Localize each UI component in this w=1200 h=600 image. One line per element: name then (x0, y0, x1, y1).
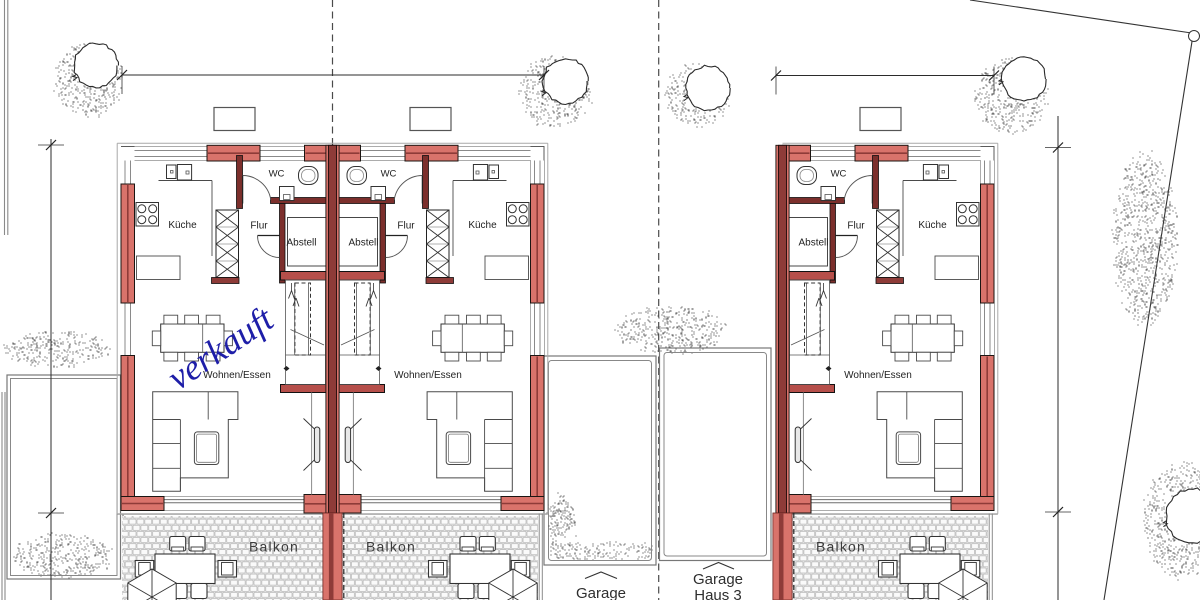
svg-text:WC: WC (831, 169, 847, 180)
svg-text:WC: WC (381, 169, 397, 180)
svg-text:Flur: Flur (250, 221, 268, 232)
svg-text:Abstell: Abstell (348, 238, 378, 249)
svg-text:Balkon: Balkon (366, 539, 416, 555)
svg-text:Garage: Garage (576, 585, 626, 600)
svg-text:Flur: Flur (397, 221, 415, 232)
svg-text:Abstell: Abstell (286, 238, 316, 249)
svg-text:Haus 3: Haus 3 (694, 587, 742, 600)
svg-text:Wohnen/Essen: Wohnen/Essen (394, 370, 462, 381)
svg-text:Wohnen/Essen: Wohnen/Essen (844, 370, 912, 381)
svg-text:WC: WC (269, 169, 285, 180)
svg-text:Balkon: Balkon (816, 539, 866, 555)
svg-text:Flur: Flur (847, 221, 865, 232)
svg-text:Küche: Küche (168, 220, 197, 231)
svg-text:Balkon: Balkon (249, 539, 299, 555)
svg-text:Küche: Küche (468, 220, 497, 231)
svg-text:Garage: Garage (693, 571, 743, 588)
svg-text:Abstell: Abstell (798, 238, 828, 249)
svg-text:Küche: Küche (918, 220, 947, 231)
